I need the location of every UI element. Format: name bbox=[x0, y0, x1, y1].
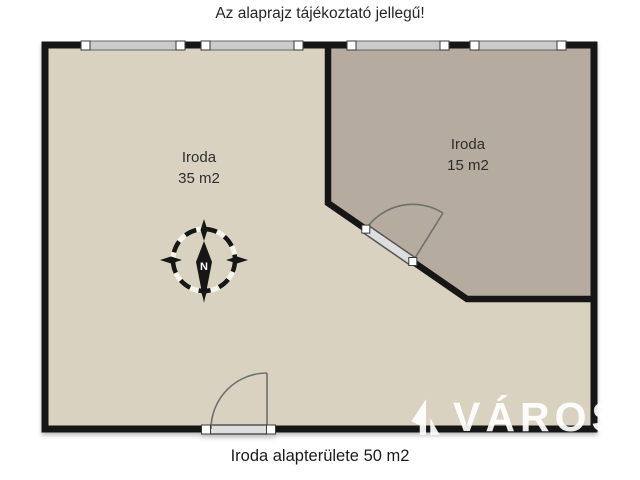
door-jamb-marker bbox=[409, 258, 417, 266]
window-segment bbox=[356, 41, 440, 50]
window-post-marker bbox=[347, 41, 356, 50]
window-segment bbox=[90, 41, 176, 50]
door-jamb-marker bbox=[267, 425, 276, 434]
room-name: Iroda bbox=[408, 134, 528, 155]
window-post-marker bbox=[176, 41, 185, 50]
watermark: VÁROS bbox=[404, 394, 624, 440]
room-area: 15 m2 bbox=[408, 155, 528, 176]
window-post-marker bbox=[557, 41, 566, 50]
room-label-office-35: Iroda 35 m2 bbox=[139, 147, 259, 189]
room-area: 35 m2 bbox=[139, 168, 259, 189]
window-segment bbox=[210, 41, 294, 50]
window-post-marker bbox=[81, 41, 90, 50]
window-segment bbox=[479, 41, 557, 50]
window-post-marker bbox=[440, 41, 449, 50]
caption-text: Iroda alapterülete 50 m2 bbox=[0, 447, 640, 466]
window-post-marker bbox=[294, 41, 303, 50]
room-label-office-15: Iroda 15 m2 bbox=[408, 134, 528, 176]
window-post-marker bbox=[201, 41, 210, 50]
watermark-text: VÁROS bbox=[453, 397, 624, 438]
room-name: Iroda bbox=[139, 147, 259, 168]
floorplan-page: Az alaprajz tájékoztató jellegű! bbox=[0, 0, 640, 480]
door-jamb-marker bbox=[202, 425, 211, 434]
varos-logo-icon bbox=[404, 396, 446, 438]
compass-north-label: N bbox=[200, 261, 208, 273]
door-jamb-marker bbox=[362, 225, 370, 233]
window-post-marker bbox=[470, 41, 479, 50]
